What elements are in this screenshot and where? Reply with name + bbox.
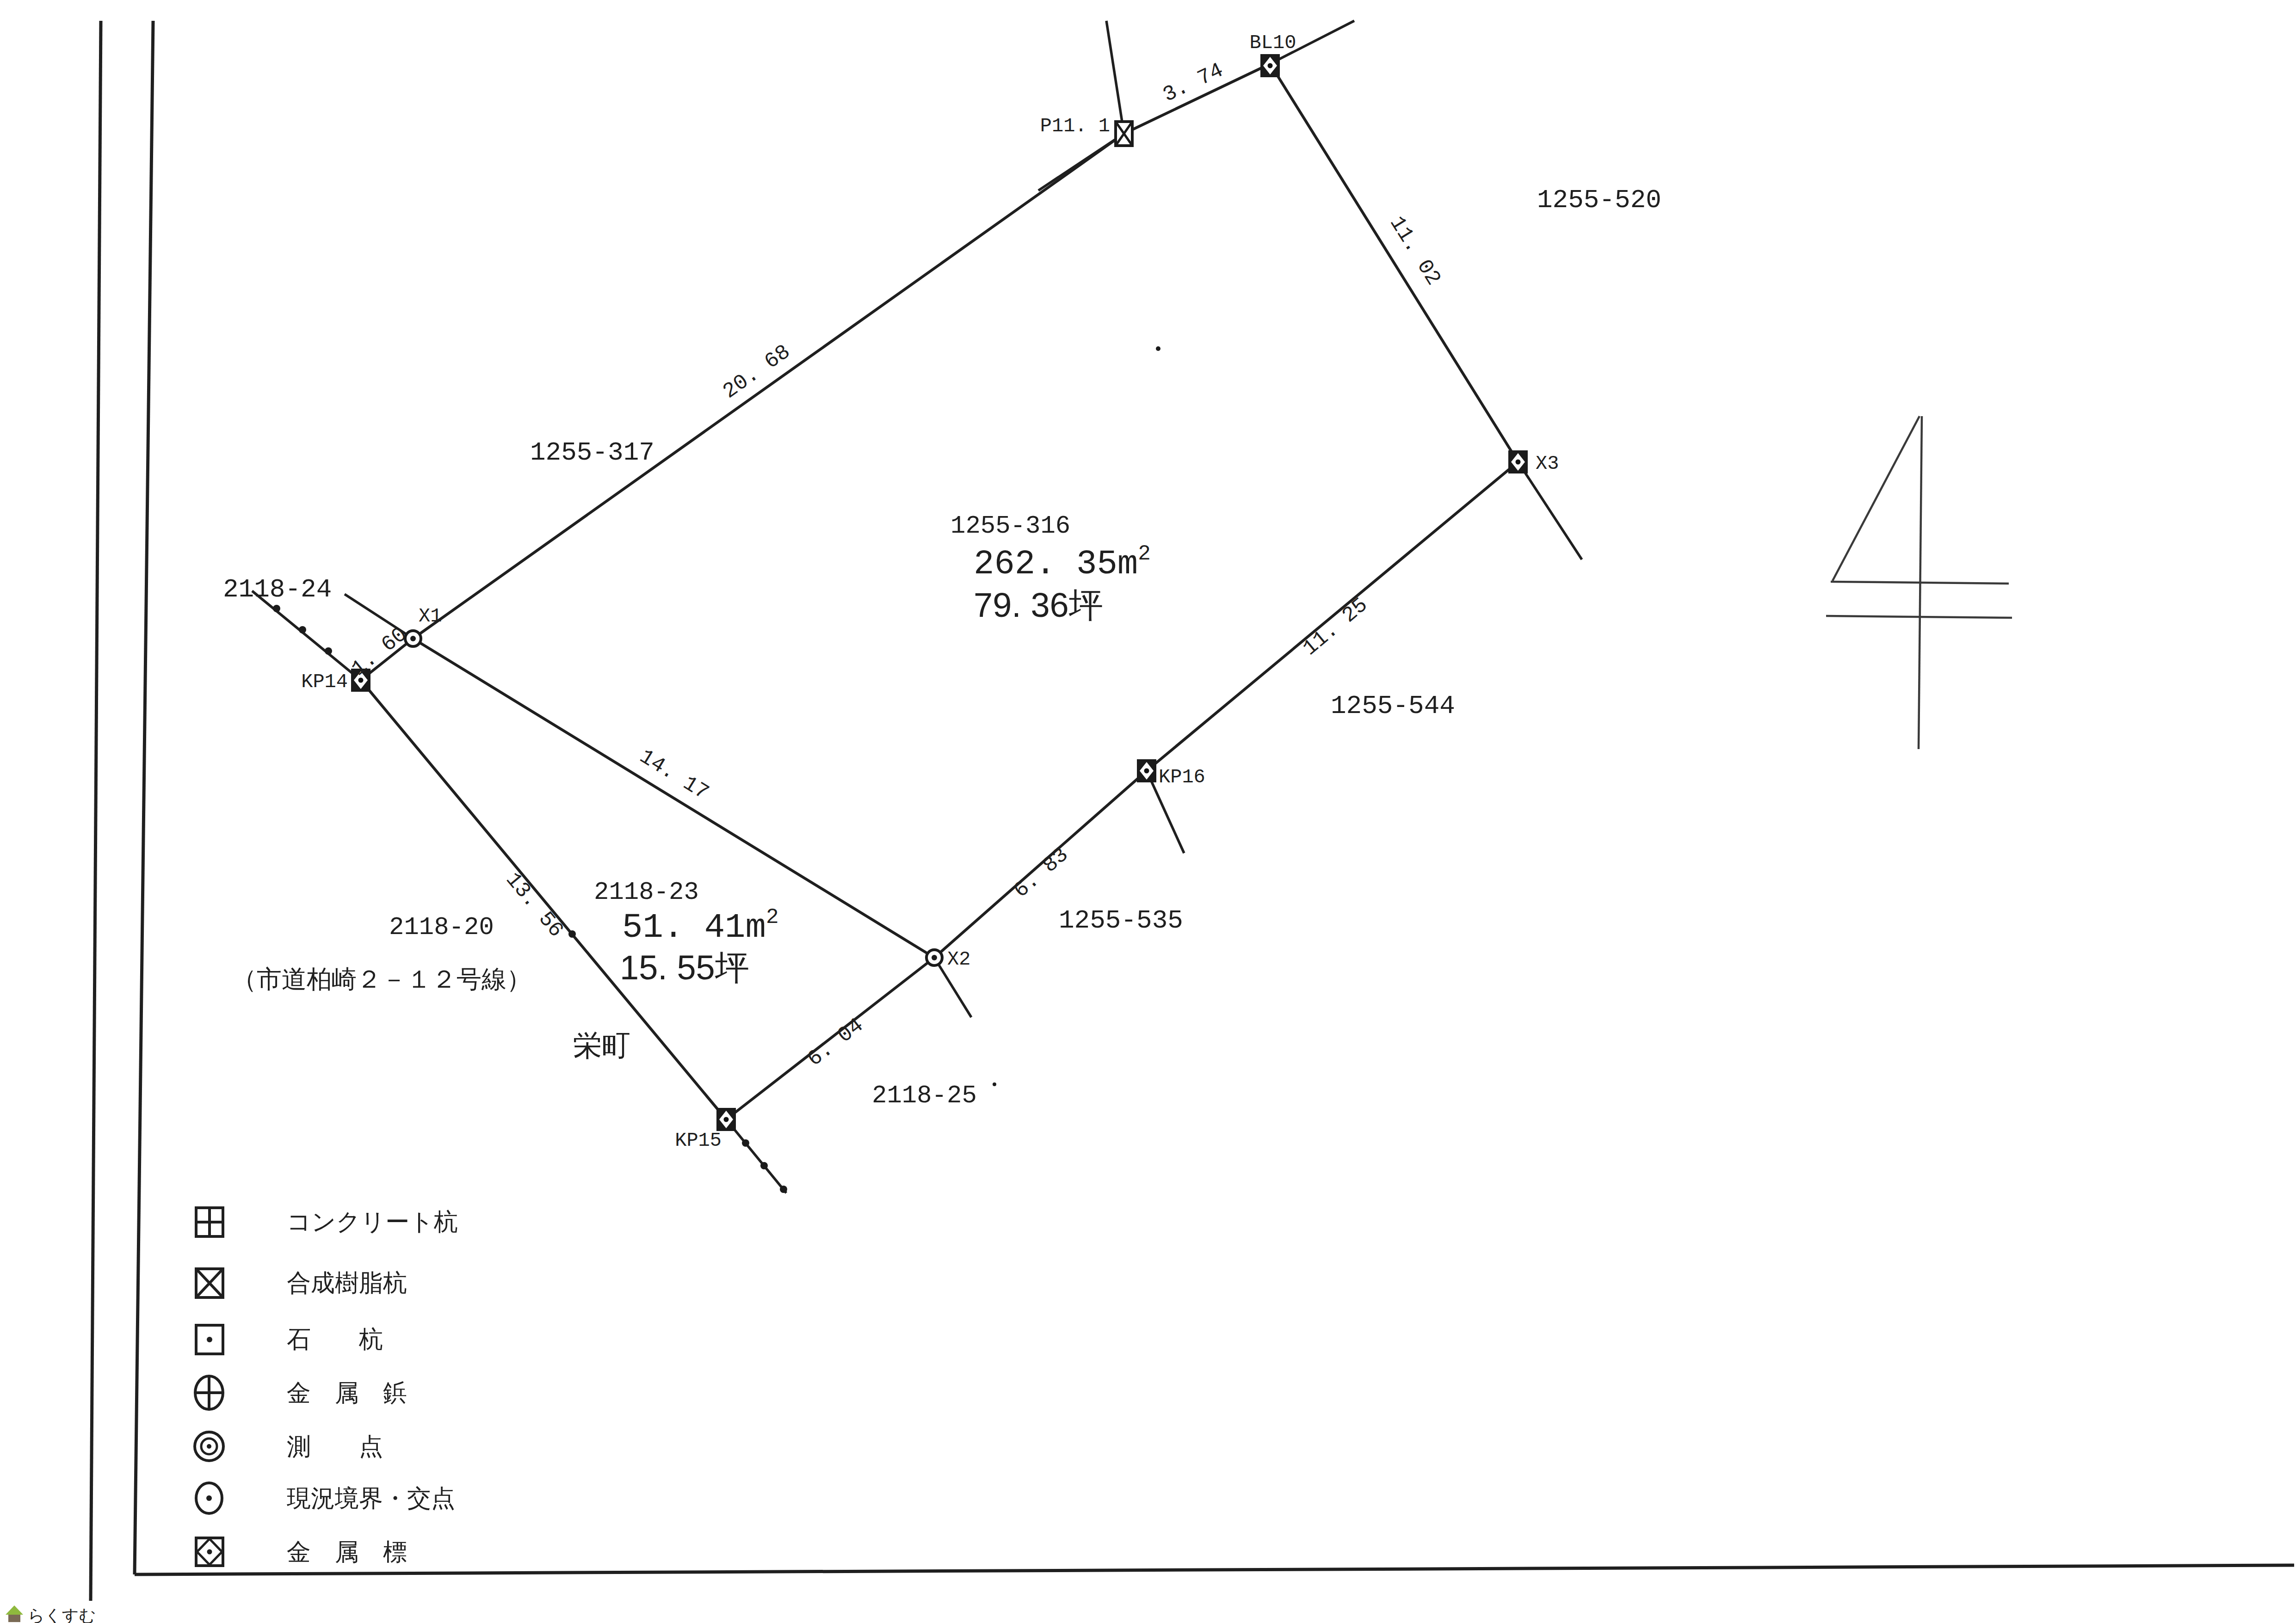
main-area-value: 262. 35 [974, 545, 1117, 584]
metal-pin-icon [195, 1376, 223, 1409]
point-label-kp15: KP15 [675, 1130, 722, 1152]
sub-parcel-area-m2: 51. 41m2 [622, 905, 778, 947]
point-label-kp16: KP16 [1159, 766, 1205, 788]
page-borders [91, 21, 2294, 1601]
district-label: 栄町 [573, 1029, 630, 1061]
watermark-text: らくすむ [28, 1606, 96, 1623]
point-label-x3: X3 [1536, 453, 1559, 475]
distance-kp16-x2: 6. 83 [1009, 843, 1073, 903]
sub-area-unit: m [745, 908, 765, 947]
distance-kp14-kp15: 13. 56 [500, 868, 568, 942]
legend: コンクリート杭 合成樹脂杭 石 杭 金 属 鋲 測 点 [195, 1208, 458, 1566]
legend-label-intersection: 現況境界・交点 [287, 1485, 455, 1512]
point-label-bl10: BL10 [1250, 32, 1296, 54]
neighbor-2118-24: 2118-24 [223, 575, 332, 604]
legend-label-concrete: コンクリート杭 [287, 1208, 458, 1235]
numeral4-diagonal-stroke [1833, 416, 1920, 581]
stone-pile-icon [196, 1325, 223, 1354]
resin-pile-marker-p111 [1116, 122, 1132, 146]
ext-x3-stub [1518, 462, 1582, 559]
metal-marker-bl10 [1260, 54, 1280, 77]
watermark: らくすむ [6, 1605, 96, 1623]
survey-map-canvas: P11. 1 BL10 X3 X1 KP14 KP16 X2 KP15 20. … [0, 0, 2296, 1623]
sub-area-value: 51. 41 [622, 908, 745, 947]
neighbor-1255-544: 1255-544 [1331, 691, 1455, 721]
road-dot [780, 1186, 787, 1193]
point-label-x2: X2 [947, 948, 970, 971]
resin-pile-icon [196, 1269, 223, 1297]
distance-kp14-x1: 1. 60 [347, 622, 412, 681]
road-dot [760, 1162, 768, 1169]
neighbor-2118-25: 2118-25 [872, 1082, 977, 1110]
main-area-sup: 2 [1138, 542, 1151, 566]
distance-x1-x2: 14. 17 [635, 744, 713, 805]
sub-parcel-area-tsubo: 15. 55坪 [620, 948, 749, 987]
bottom-border-line [135, 1565, 2294, 1574]
watermark-house-icon [6, 1605, 23, 1615]
survey-point-icon [195, 1432, 223, 1461]
boundary-intersection-icon [196, 1483, 222, 1513]
main-parcel-area-tsubo: 79. 36坪 [974, 586, 1103, 624]
sub-parcel-number: 2118-23 [594, 878, 699, 906]
metal-marker-icon [196, 1538, 223, 1566]
legend-label-survey-point: 測 点 [287, 1433, 383, 1460]
distance-labels: 20. 68 3. 74 11. 02 11. 25 6. 83 14. 17 … [347, 58, 1445, 1072]
neighbor-1255-317: 1255-317 [530, 438, 654, 467]
sub-area-sup: 2 [766, 905, 779, 929]
main-parcel-number: 1255-316 [950, 512, 1070, 540]
point-label-kp14: KP14 [301, 671, 348, 693]
left-border-outer-line [91, 21, 101, 1601]
legend-label-stone: 石 杭 [287, 1326, 383, 1352]
road-line-dots [273, 346, 1160, 1193]
main-area-unit: m [1117, 545, 1138, 584]
legend-label-resin: 合成樹脂杭 [287, 1269, 407, 1296]
intersection-marker-x2 [926, 950, 942, 965]
numeral4-crossbar-lower [1826, 616, 2012, 618]
hand-drawn-numeral-4 [1826, 416, 2012, 749]
distance-x3-kp16: 11. 25 [1298, 593, 1372, 661]
road-dot [742, 1139, 749, 1147]
point-label-p111: P11. 1 [1040, 115, 1110, 137]
neighbor-2118-20: 2118-20 [389, 913, 494, 941]
metal-marker-kp15 [716, 1108, 736, 1131]
point-label-x1: X1 [419, 605, 442, 627]
neighbor-1255-535: 1255-535 [1059, 906, 1183, 935]
watermark-house-body [8, 1615, 20, 1622]
main-parcel-area-m2: 262. 35m2 [974, 542, 1151, 584]
scan-speckle [1156, 346, 1160, 351]
legend-label-metal-marker: 金 属 標 [287, 1538, 407, 1565]
distance-bl10-x3: 11. 02 [1384, 212, 1445, 290]
left-border-inner-line [135, 21, 153, 1574]
road-dot [299, 626, 306, 633]
neighbor-1255-520: 1255-520 [1537, 185, 1661, 215]
extension-lines [252, 21, 1582, 1193]
metal-marker-kp16 [1137, 759, 1156, 782]
distance-x2-kp15: 6. 04 [803, 1014, 868, 1072]
road-dot [568, 930, 576, 938]
road-dot [273, 605, 280, 612]
ext-p111-fork [1038, 134, 1124, 191]
road-dot [325, 647, 332, 655]
survey-map-sheet: P11. 1 BL10 X3 X1 KP14 KP16 X2 KP15 20. … [0, 0, 2296, 1623]
metal-marker-x3 [1508, 450, 1528, 473]
concrete-pile-icon [196, 1208, 223, 1236]
boundary-bl10-x3 [1270, 64, 1518, 462]
legend-label-metal-pin: 金 属 鋲 [287, 1379, 407, 1406]
numeral4-crossbar-upper [1831, 582, 2009, 584]
road-name-label: （市道柏崎２－１２号線） [232, 965, 531, 993]
scan-speckle [993, 1082, 996, 1086]
